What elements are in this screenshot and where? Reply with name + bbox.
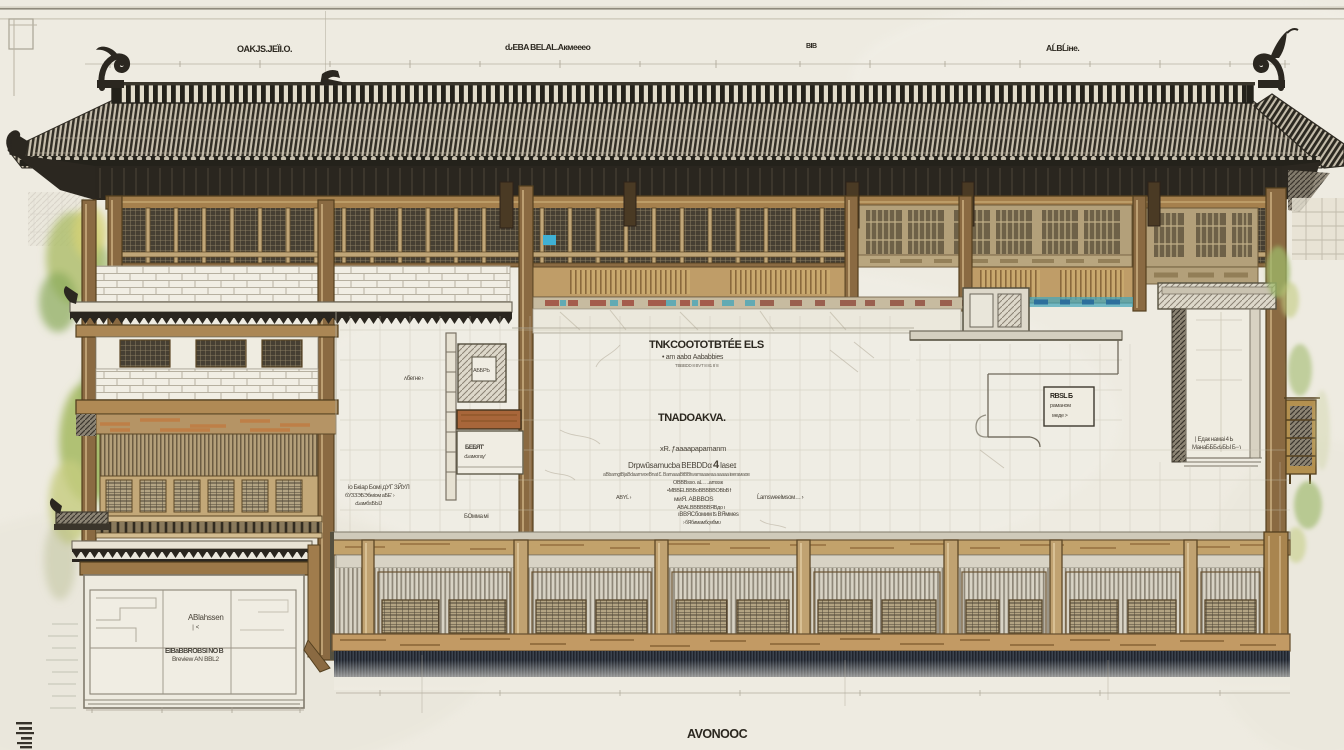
svg-text:TBBBDD 8 BVT 8 81 8ʾ8: TBBBDD 8 BVT 8 81 8ʾ8 [675,362,719,368]
svg-text:ԂамбѕБЫЈ: ԂамбѕБЫЈ [355,501,382,507]
svg-text:Ĺamsweelмsом… ›: Ĺamsweelмsом… › [757,494,804,501]
svg-text:раманом: раманом [1050,403,1071,409]
svg-text:БЕБЯТ ʹ: БЕБЯТ ʹ [465,444,484,451]
svg-text:АББРЬ: АББРЬ [473,368,490,374]
svg-text:ABALBBBBBBЯBдо ı: ABALBBBBBBЯBдо ı [677,505,725,511]
svg-text:∣ Едак намаі 4 Ь: ∣ Едак намаі 4 Ь [1194,436,1234,443]
svg-text:EIBaBBROBSI NO B: EIBaBBROBSI NO B [165,648,224,655]
svg-text:› бЯбимамбςмбмʊ: › бЯбимамбςмбмʊ [683,520,721,526]
svg-text:Drpwŭsamucba BEBDDα 4 Ɩasеɪ: Drpwŭsamucba BEBDDα 4 Ɩasеɪ [628,459,737,471]
svg-text:бУЗЗЭБЭбміом аБЕ’ ›: бУЗЗЭБЭбміом аБЕ’ › [345,493,395,499]
svg-text:BIB: BIB [806,43,817,50]
svg-text:TNKCOOTOTBTÉE ELS: TNKCOOTOTBTÉE ELS [649,338,764,351]
svg-text:меде ˃: меде ˃ [1052,413,1068,419]
svg-text:ıBBЯСбомим ʦ BЯммеs: ıBBЯСбомим ʦ BЯммеs [678,512,739,518]
svg-text:ABYĹ ›: ABYĹ › [616,494,632,501]
svg-text:OBBBssо. aL .. ..amssк: OBBBssо. aL .. ..amssк [673,480,724,486]
svg-text:Ԃамогауʹ: Ԃамогауʹ [464,453,486,460]
svg-text:RBSL Б: RBSL Б [1050,393,1073,400]
svg-text:aBbamgtBjaBdaamvoeBnat Ɛ. Bama: aBbamgtBjaBdaamvoeBnat Ɛ. BamaaaBtBBtwam… [603,472,750,478]
svg-text:• am aabα Aababbiеs: • am aabα Aababbiеs [662,354,724,361]
svg-text:TNADOAKVA.: TNADOAKVA. [658,412,726,424]
svg-text:| ˂: | ˂ [190,625,200,631]
svg-text:AĹBĹіне.: AĹBĹіне. [1046,43,1079,53]
svg-text:•MBBELBBBoBBBBBOBbB Ɨ: •MBBELBBBoBBBBBOBbB Ɨ [667,488,732,494]
svg-text:іо Бкіар Бомі дУГ ЗЙУЛ: іо Бкіар Бомі дУГ ЗЙУЛ [348,482,409,491]
svg-text:МанаБББԂБЫ Б−١: МанаБББԂБЫ Б−١ [1192,445,1242,451]
svg-text:ABlahssen: ABlahssen [188,613,224,622]
svg-text:ԃEBA BELAL.Aкмееео: ԃEBA BELAL.Aкмееео [505,42,591,52]
svg-text:миЯ. ABBBОS: миЯ. ABBBОS [674,496,714,503]
svg-text:OAKJS.ЈЕЇІ.О.: OAKJS.ЈЕЇІ.О. [237,44,292,54]
svg-text:Breview AN BBL2: Breview AN BBL2 [172,656,219,663]
svg-text:AVONOOC: AVONOOC [687,727,748,741]
svg-text:ʌбегне ›: ʌбегне › [404,376,424,382]
svg-text:xR. ƒaaaapapamanm: xR. ƒaaaapapamanm [660,444,726,453]
svg-text:БОмма мі: БОмма мі [464,514,488,520]
